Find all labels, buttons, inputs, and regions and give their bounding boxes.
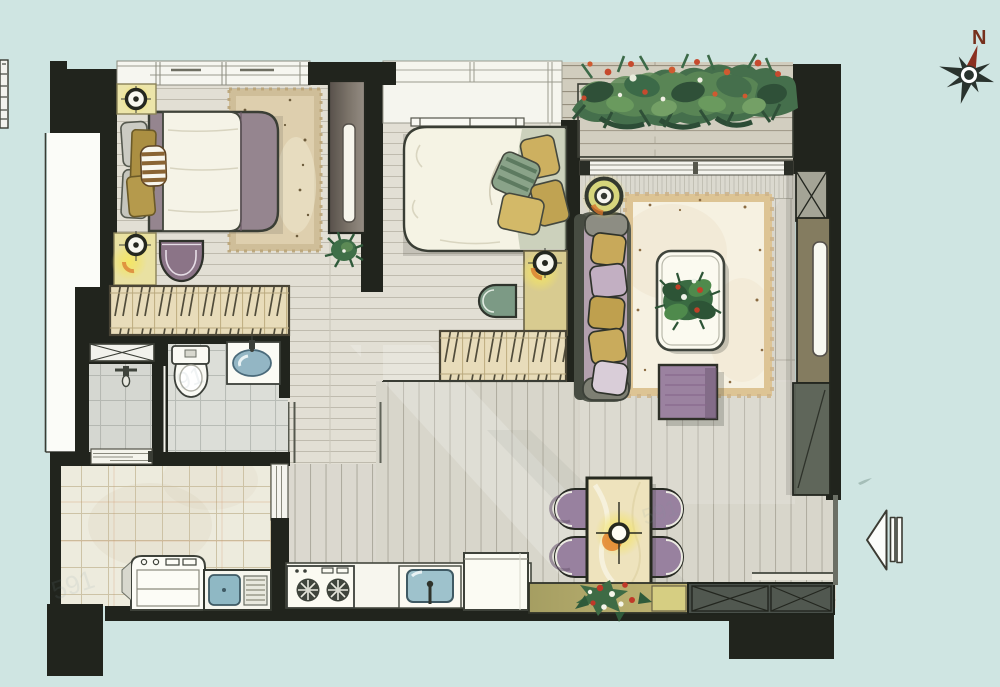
svg-text:N: N [972, 27, 986, 49]
